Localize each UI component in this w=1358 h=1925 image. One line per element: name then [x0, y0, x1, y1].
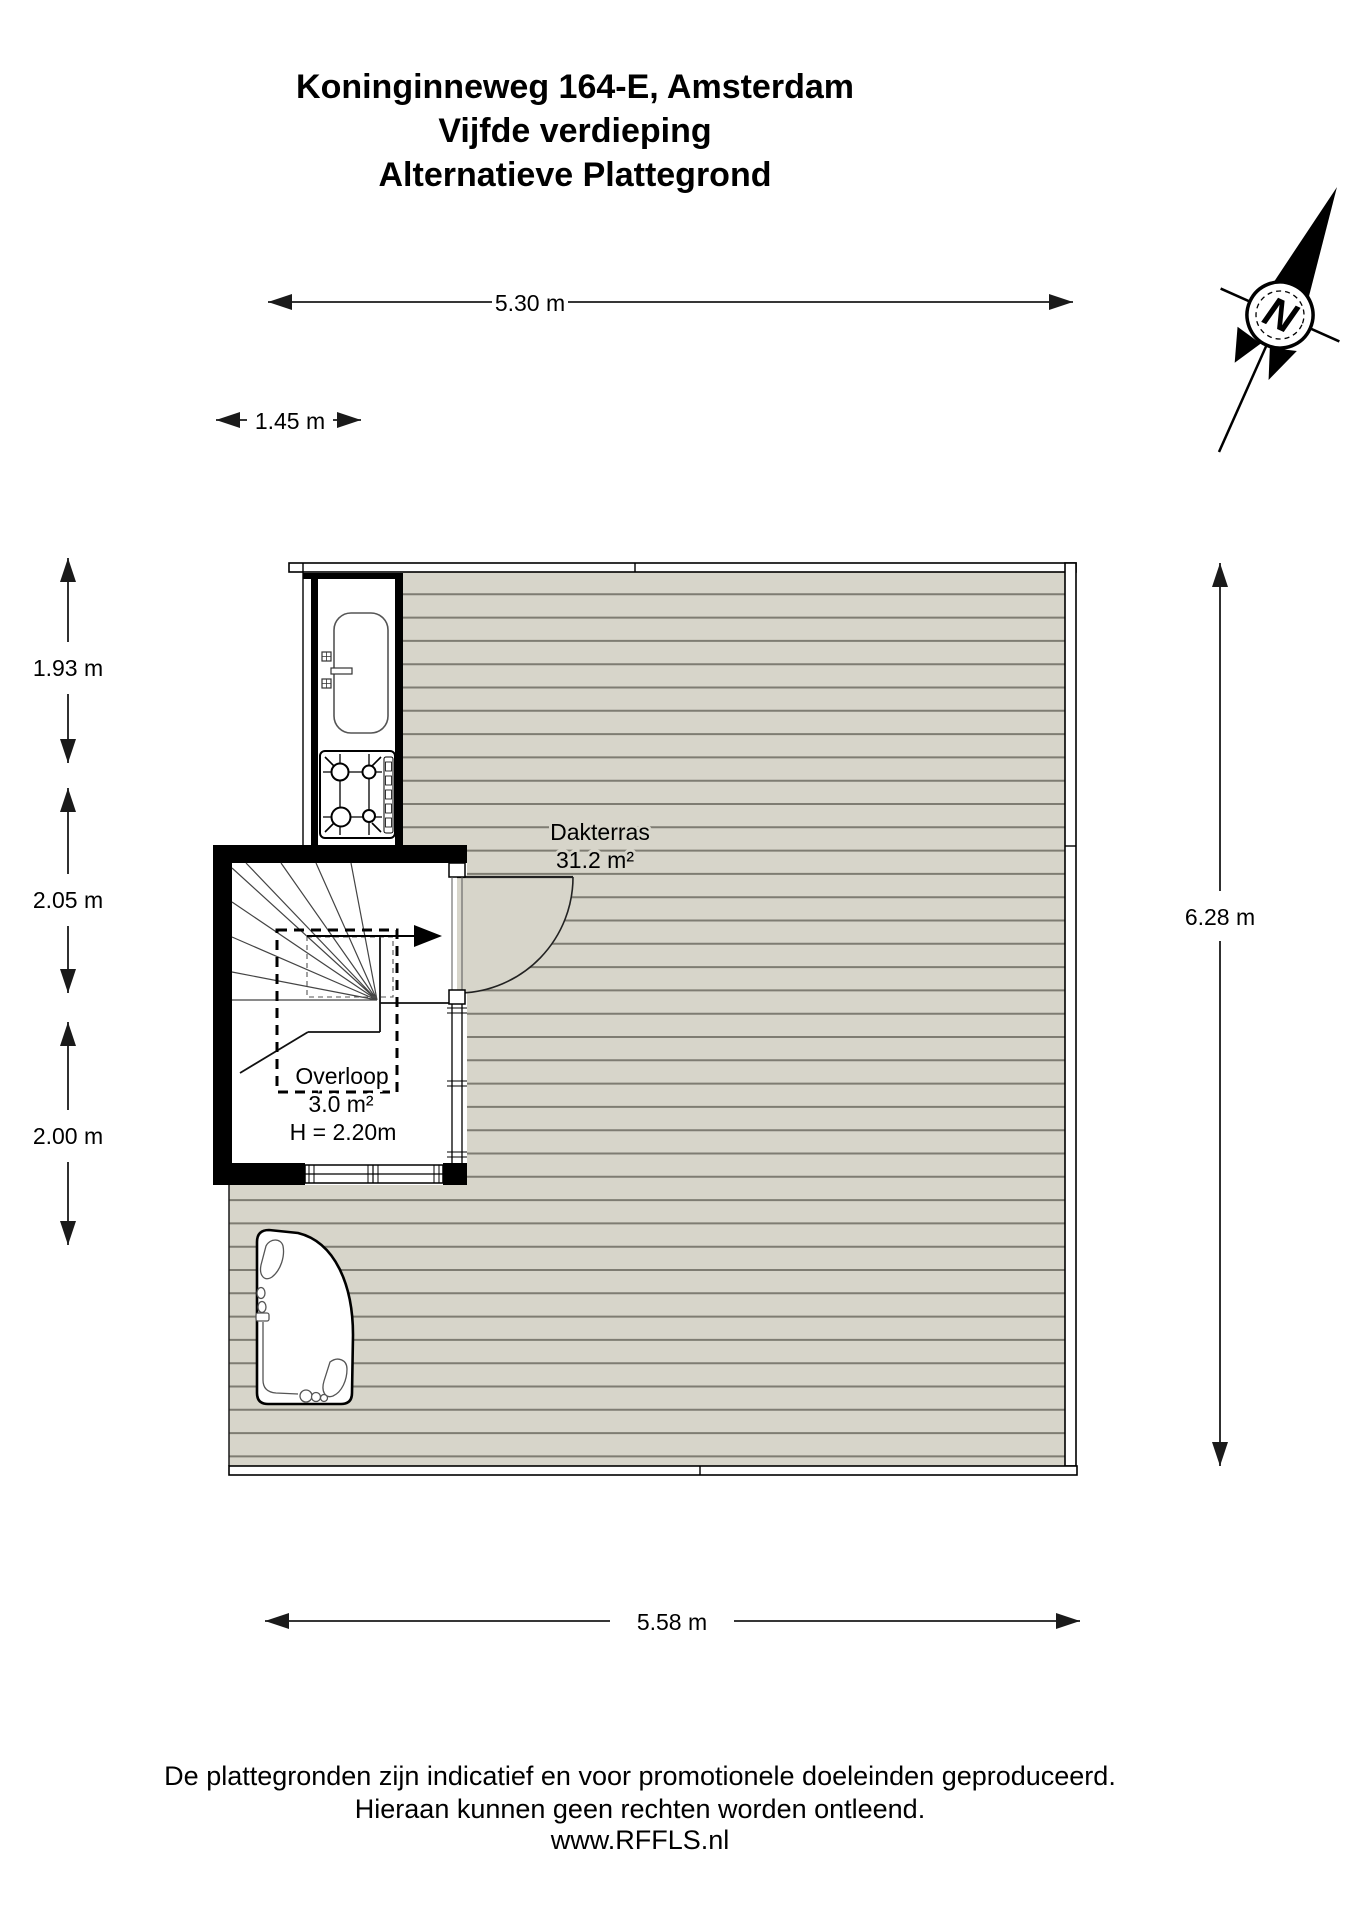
dim-left-top-label: 1.93 m — [33, 655, 103, 681]
floorplan-canvas: Koninginneweg 164-E, Amsterdam Vijfde ve… — [0, 0, 1358, 1920]
terrace-area-label: 31.2 m² — [556, 847, 634, 873]
dim-left-bottom-label: 2.00 m — [33, 1123, 103, 1149]
gas-hob — [320, 751, 395, 838]
dimension-left-bottom: 2.00 m — [33, 1022, 103, 1245]
landing-area-label: 3.0 m² — [308, 1091, 374, 1117]
dimension-left-middle: 2.05 m — [33, 788, 103, 993]
dim-right-height-label: 6.28 m — [1185, 904, 1255, 930]
footer-line-2: Hieraan kunnen geen rechten worden ontle… — [355, 1794, 925, 1824]
page-title: Koninginneweg 164-E, Amsterdam Vijfde ve… — [296, 68, 854, 194]
dimension-right-height: 6.28 m — [1185, 563, 1255, 1466]
stairwell-window — [305, 1165, 443, 1183]
dimension-bottom-width: 5.58 m — [265, 1609, 1080, 1635]
dim-left-middle-label: 2.05 m — [33, 887, 103, 913]
dim-stair-block-width-label: 1.45 m — [255, 408, 325, 434]
dim-bottom-width-label: 5.58 m — [637, 1609, 707, 1635]
dim-top-width-label: 5.30 m — [495, 290, 565, 316]
dimension-stair-block-width: 1.45 m — [216, 408, 361, 434]
footer-line-1: De plattegronden zijn indicatief en voor… — [164, 1761, 1116, 1791]
title-address: Koninginneweg 164-E, Amsterdam — [296, 68, 854, 106]
staircase — [232, 863, 449, 1092]
dimension-top-width: 5.30 m — [268, 290, 1073, 316]
footer-disclaimer: De plattegronden zijn indicatief en voor… — [164, 1761, 1116, 1855]
footer-website-link: www.RFFLS.nl — [550, 1825, 730, 1855]
terrace-name-label: Dakterras — [550, 819, 650, 845]
compass-icon: N — [1160, 161, 1358, 479]
title-floor: Vijfde verdieping — [438, 112, 711, 150]
title-variant: Alternatieve Plattegrond — [379, 156, 772, 194]
landing-name-label: Overloop — [295, 1063, 388, 1089]
dimension-left-top: 1.93 m — [33, 558, 103, 763]
faucet-icon — [331, 668, 352, 674]
kitchen-block — [303, 563, 403, 845]
kitchen-sink — [322, 613, 388, 733]
landing-height-label: H = 2.20m — [290, 1119, 397, 1145]
floorplan-page: Koninginneweg 164-E, Amsterdam Vijfde ve… — [0, 0, 1358, 1920]
